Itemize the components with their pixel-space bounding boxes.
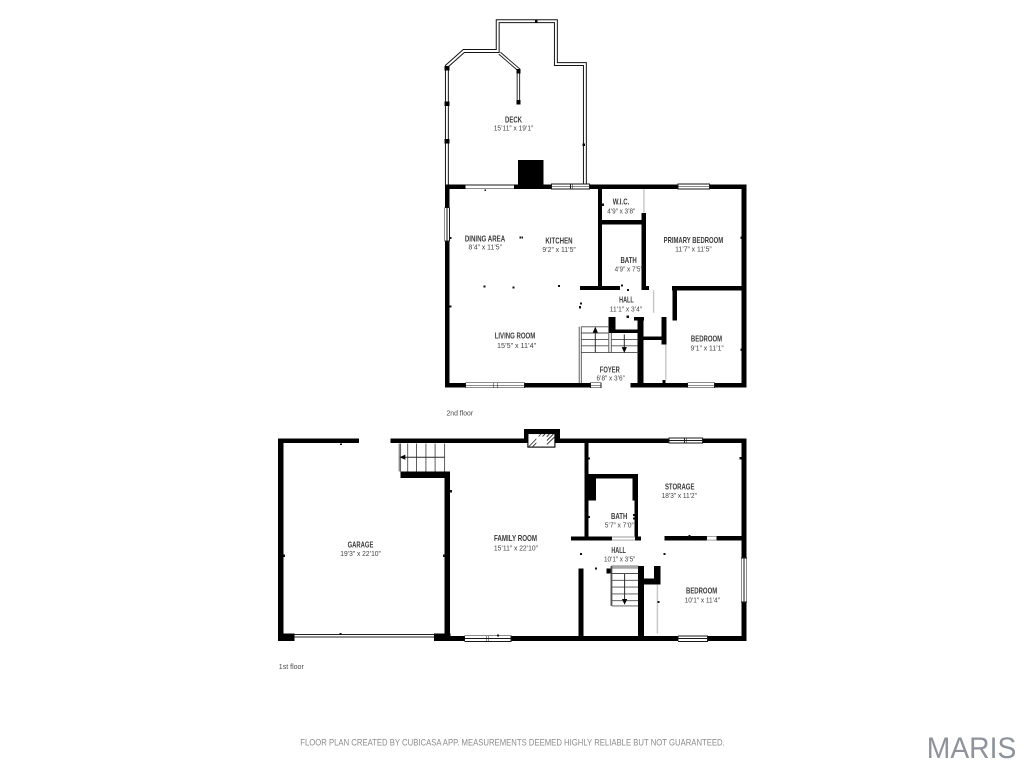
svg-text:10’1” x 11’4”: 10’1” x 11’4” [685,596,721,605]
svg-text:18’3” x 11’2”: 18’3” x 11’2” [662,491,698,500]
svg-text:15’11” x 19’1”: 15’11” x 19’1” [494,123,534,132]
svg-text:19’3” x 22’10”: 19’3” x 22’10” [340,549,381,558]
svg-text:5’7” x 7’0”: 5’7” x 7’0” [605,520,634,529]
svg-text:HALL: HALL [619,296,634,305]
svg-text:6’8” x 3’6”: 6’8” x 3’6” [596,374,625,383]
svg-text:MARIS: MARIS [927,732,1017,765]
svg-text:11’1” x 3’4”: 11’1” x 3’4” [610,304,643,313]
svg-text:FLOOR PLAN CREATED BY CUBICASA: FLOOR PLAN CREATED BY CUBICASA APP. MEAS… [300,738,725,748]
svg-text:15’5” x 11’4”: 15’5” x 11’4” [497,341,537,350]
svg-text:11’7” x 11’5”: 11’7” x 11’5” [675,244,712,253]
svg-text:8’4” x 11’5”: 8’4” x 11’5” [469,243,503,252]
svg-text:2nd floor: 2nd floor [447,408,474,417]
svg-text:9’2” x 11’5”: 9’2” x 11’5” [542,245,576,254]
svg-text:W.I.C.: W.I.C. [613,198,630,207]
svg-text:BEDROOM: BEDROOM [686,587,717,596]
svg-text:10’1” x 3’5”: 10’1” x 3’5” [604,554,636,563]
svg-text:LIVING ROOM: LIVING ROOM [495,332,536,341]
svg-text:4’9” x 7’5”: 4’9” x 7’5” [615,264,643,273]
svg-text:FAMILY ROOM: FAMILY ROOM [494,534,537,543]
svg-text:1st floor: 1st floor [279,662,304,671]
svg-text:BEDROOM: BEDROOM [691,334,722,343]
svg-text:4’9” x 3’8”: 4’9” x 3’8” [607,206,635,215]
svg-text:15’11” x 22’10”: 15’11” x 22’10” [494,543,538,552]
svg-text:9’1” x 11’1”: 9’1” x 11’1” [691,344,725,353]
